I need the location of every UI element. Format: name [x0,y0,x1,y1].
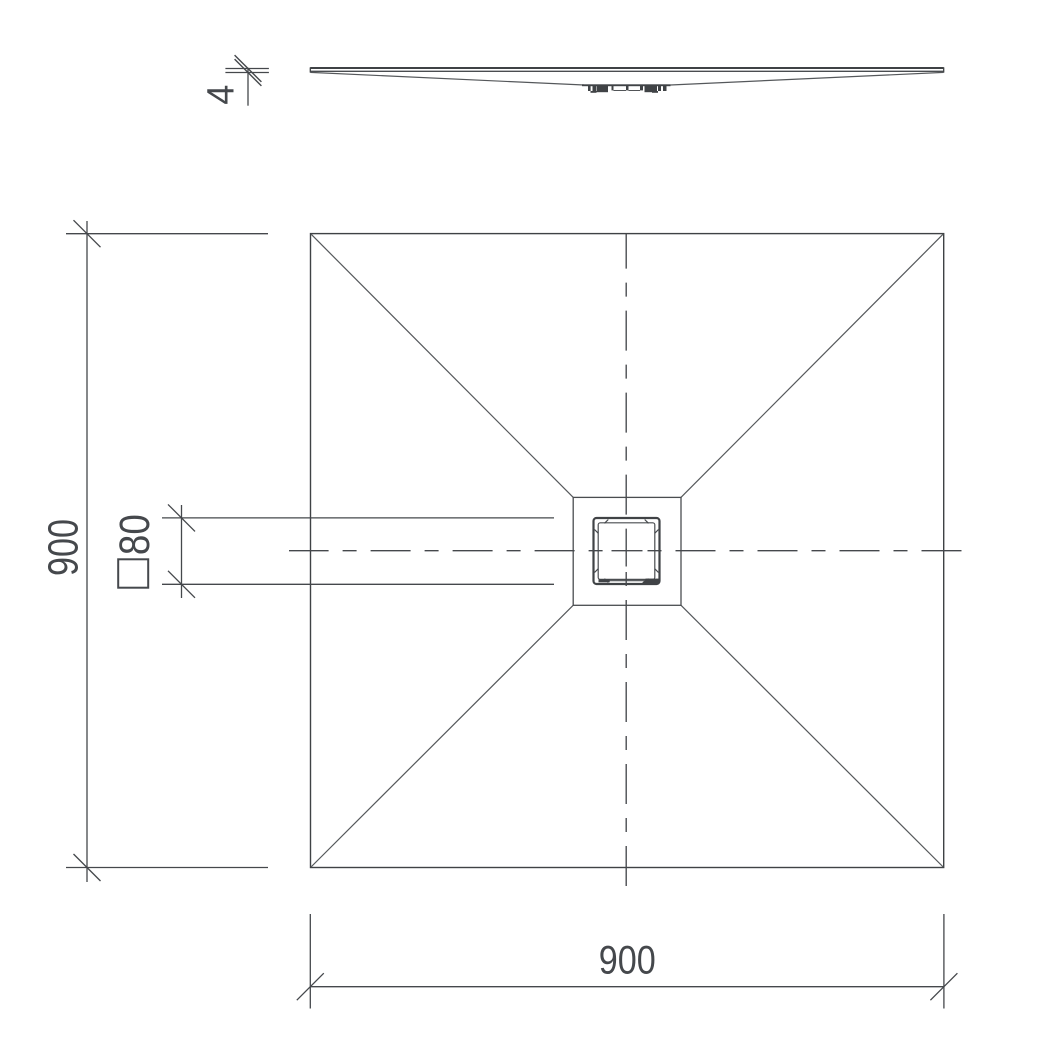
svg-text:4: 4 [201,85,243,105]
svg-text:80: 80 [111,514,159,555]
svg-text:900: 900 [599,939,656,983]
svg-text:900: 900 [40,519,88,576]
